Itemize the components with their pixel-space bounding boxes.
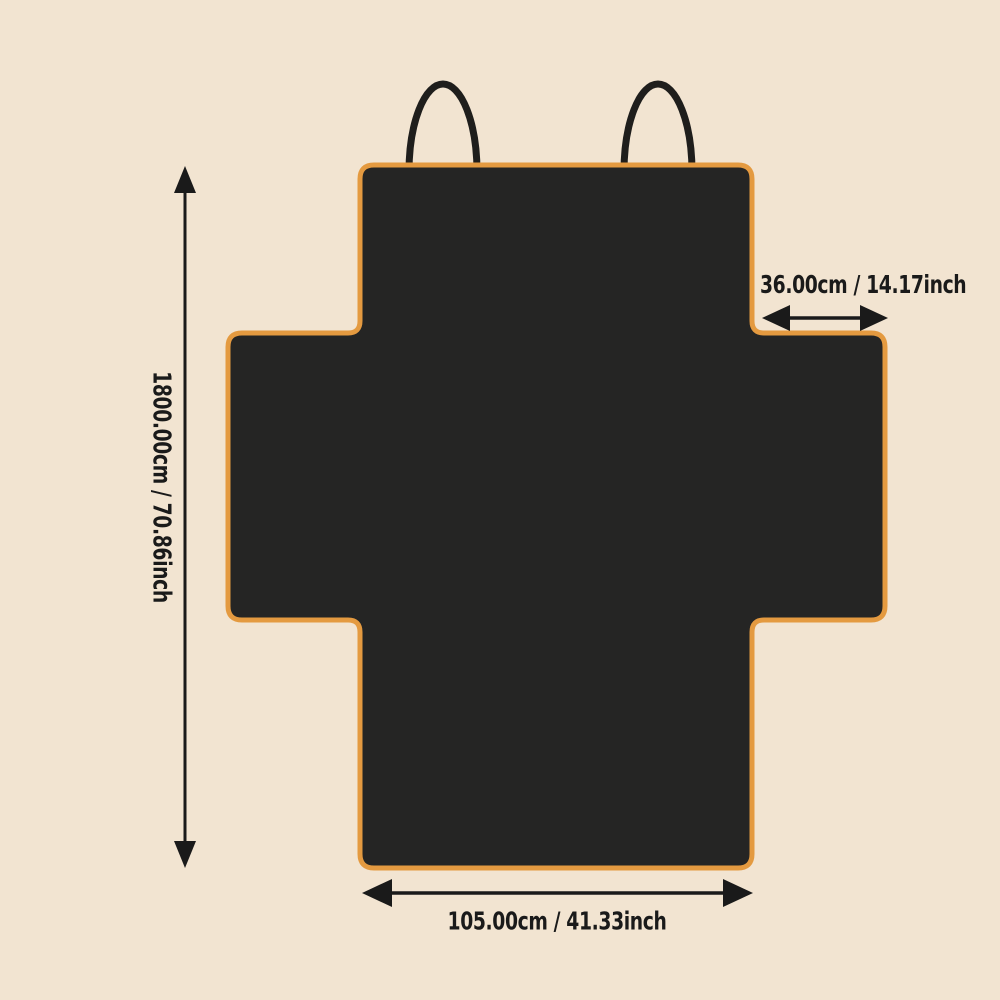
left-strap-loop-icon <box>409 84 477 172</box>
left-arrowhead-icon <box>362 879 392 907</box>
height-dimension-label: 1800.00cm / 70.86inch <box>148 371 177 603</box>
height-dimension-indicator <box>174 166 196 868</box>
side-flap-dimension-indicator <box>762 305 888 331</box>
side-flap-dimension-label: 36.00cm / 14.17inch <box>760 270 966 299</box>
right-strap-loop-icon <box>624 84 692 172</box>
bottom-width-dimension-indicator <box>362 879 753 907</box>
right-arrowhead-icon <box>723 879 753 907</box>
bottom-width-dimension-label: 105.00cm / 41.33inch <box>448 907 667 936</box>
down-arrowhead-icon <box>174 841 196 868</box>
product-diagram-stage: 1800.00cm / 70.86inch 36.00cm / 14.17inc… <box>0 0 1000 1000</box>
right-arrowhead-icon <box>860 305 888 331</box>
up-arrowhead-icon <box>174 166 196 193</box>
left-arrowhead-icon <box>762 305 790 331</box>
